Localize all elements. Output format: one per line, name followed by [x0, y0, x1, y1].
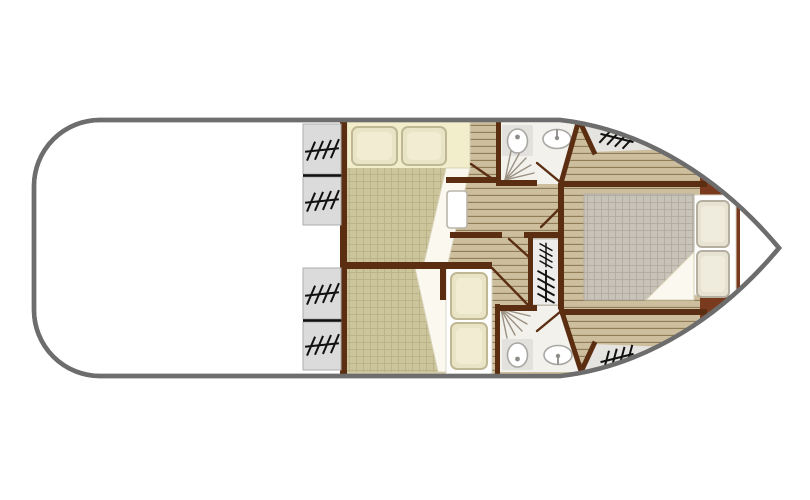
toilet-icon: [502, 339, 533, 370]
wall: [524, 232, 560, 238]
pillow-inner: [357, 132, 392, 160]
cabin-door: [447, 191, 467, 228]
wall: [342, 262, 492, 269]
wall: [560, 181, 707, 187]
wall: [495, 304, 500, 374]
boat-floor-plan: [0, 0, 810, 500]
companionway-stairs: [532, 239, 559, 305]
sink-icon: [543, 130, 571, 149]
wall: [558, 183, 564, 309]
wall: [446, 177, 496, 183]
wall: [496, 180, 537, 186]
master-pillow-inner: [701, 206, 725, 242]
pillow-inner: [456, 278, 482, 314]
boat-floor-plan-canvas: [0, 0, 810, 500]
port-cabin-aft: [347, 266, 492, 374]
wall: [450, 232, 502, 238]
master-pillow-inner: [701, 256, 725, 292]
sink-icon: [544, 346, 572, 365]
pillow-inner: [456, 328, 482, 364]
wall: [496, 122, 501, 184]
port-cabin-forward: [347, 122, 470, 263]
wall: [528, 238, 533, 306]
wall: [560, 309, 707, 315]
pillow-inner: [407, 132, 441, 160]
wall: [440, 268, 446, 300]
toilet-icon: [502, 125, 533, 156]
